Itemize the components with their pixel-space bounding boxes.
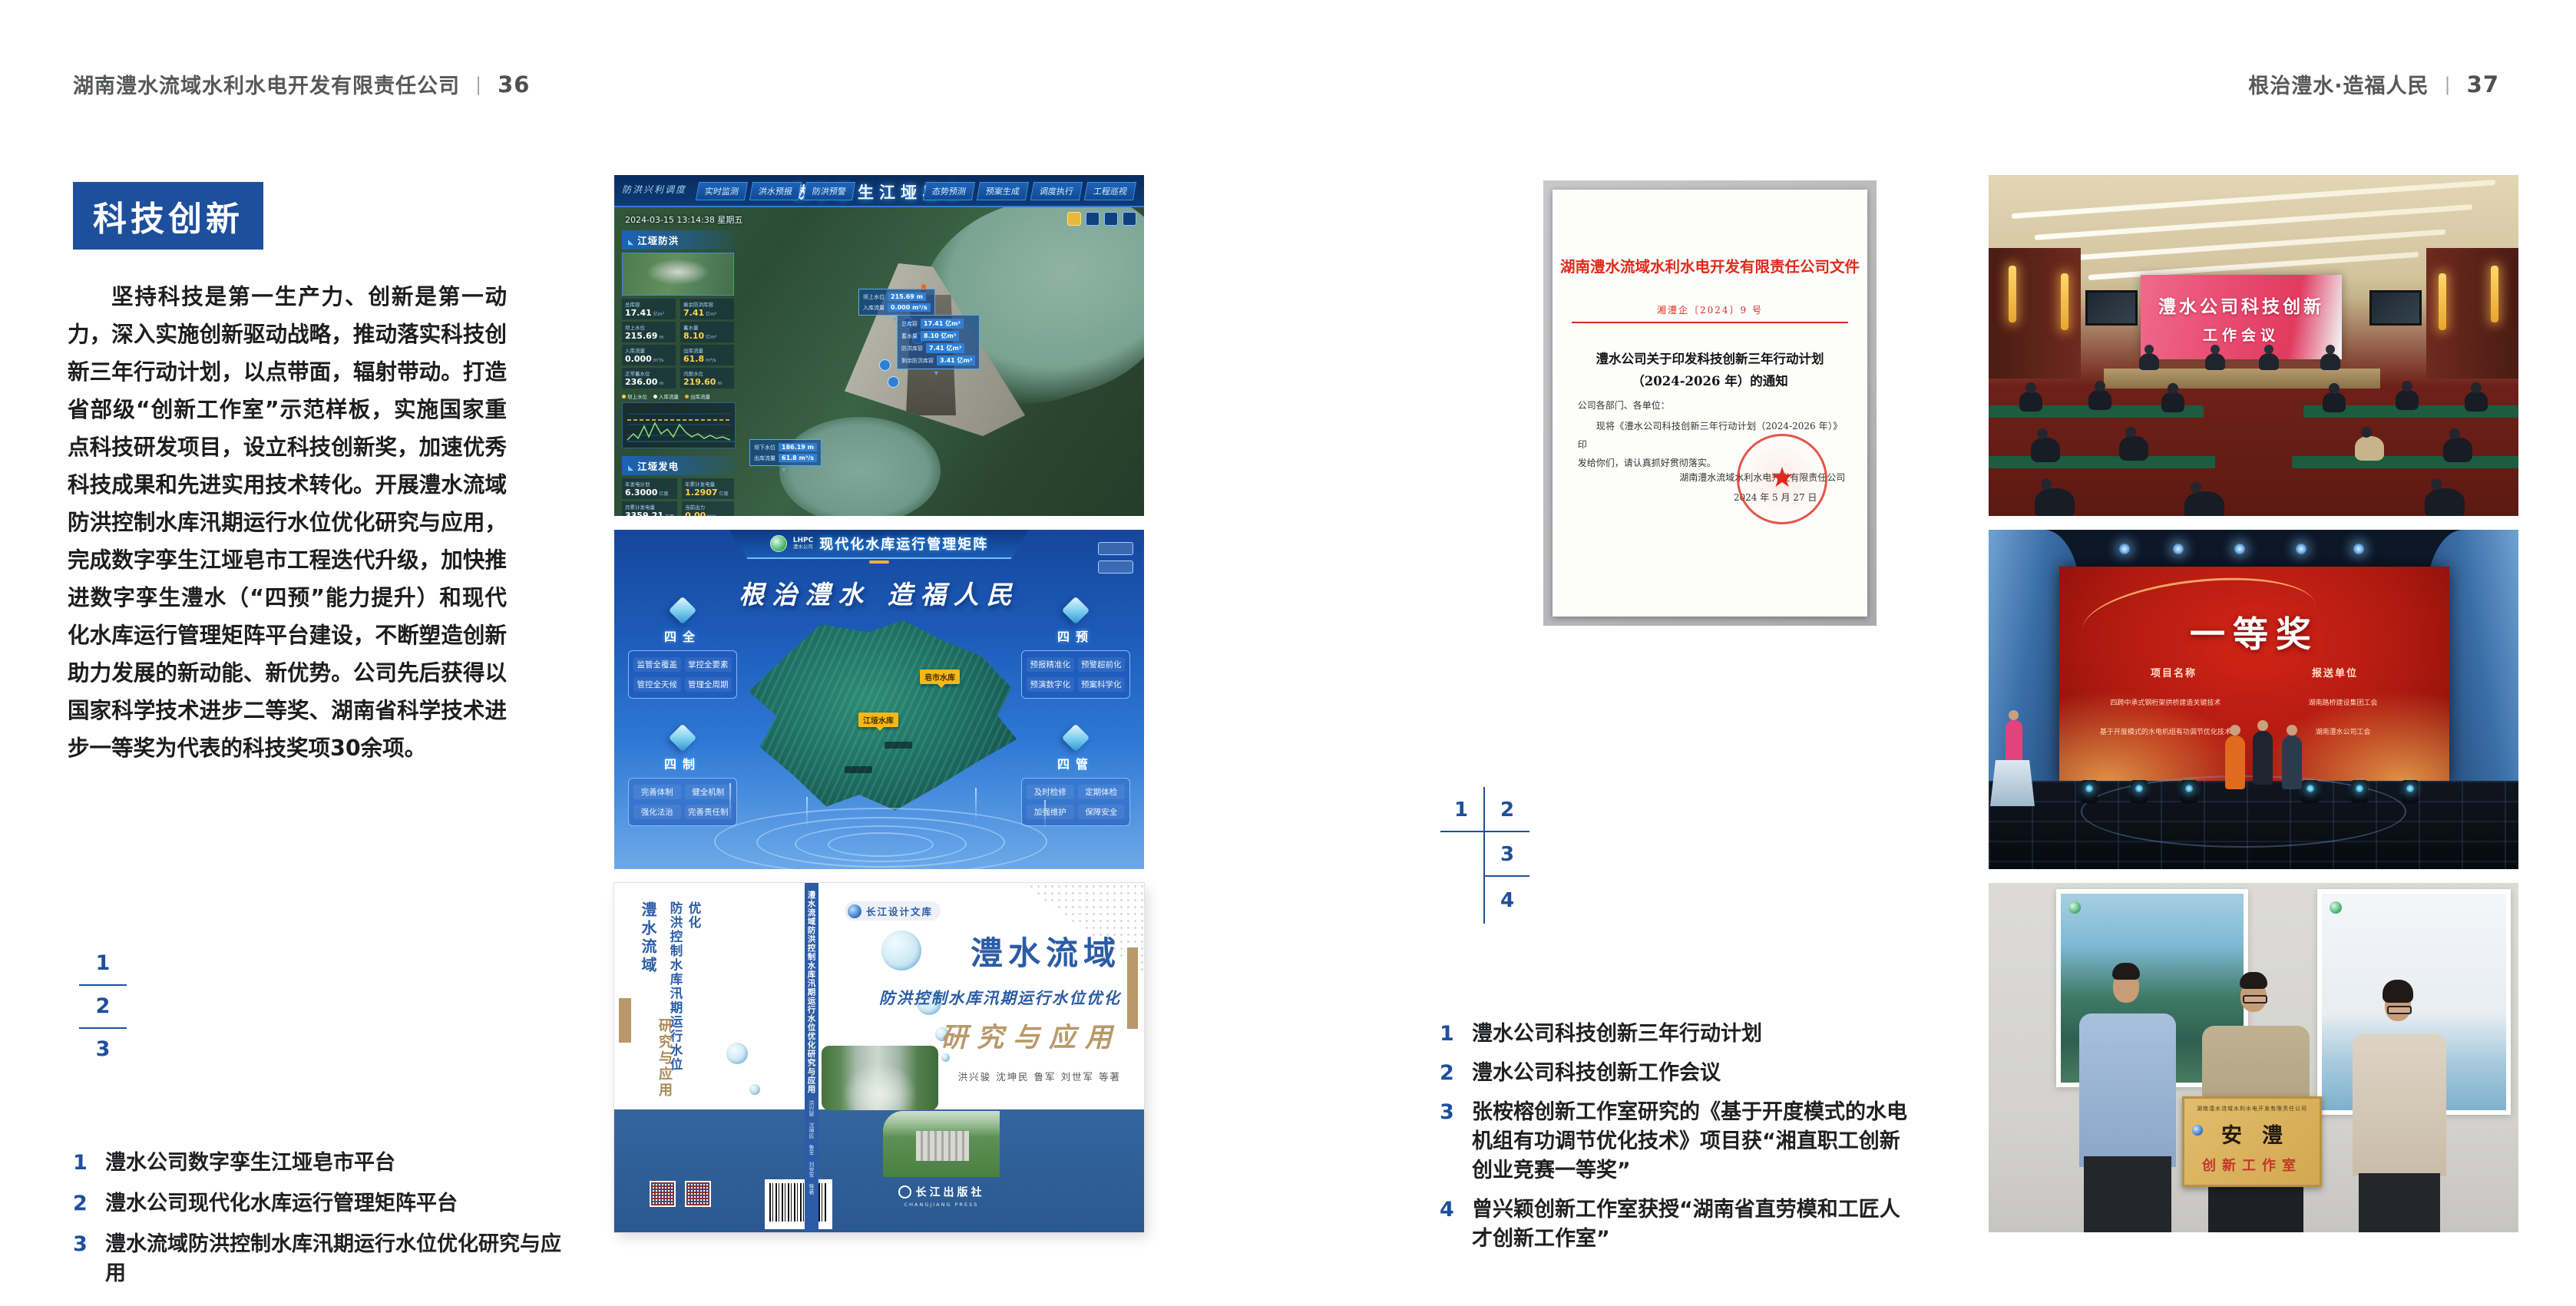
figure-digital-twin-dashboard: 防洪兴利调度 数字孪生江垭皂市 实时监测 洪水预报 防洪预警 态势预测 预案生成… (614, 175, 1144, 516)
header-divider: | (2445, 74, 2452, 95)
publisher-logo (898, 1185, 911, 1199)
dashboard-tabs-right: 态势预测 预案生成 调度执行 工程巡视 (924, 182, 1135, 200)
index-divider-line (79, 1027, 127, 1029)
stage-light-fixture (2402, 780, 2419, 803)
changjiang-design-logo (848, 904, 861, 918)
qr-code (685, 1181, 711, 1207)
power-panel-title: 江垭发电 (622, 456, 734, 475)
figure-index-left: 1 2 3 (79, 952, 127, 1061)
tab-dispatch-execution[interactable]: 调度执行 (1030, 182, 1083, 200)
qr-code (650, 1181, 676, 1207)
figure-management-matrix: LHPC 澧水公司 现代化水库运行管理矩阵 根治澧水 造福人民 皂市水库 江垭水… (614, 530, 1144, 869)
caption-text: 澧水公司现代化水库运行管理矩阵平台 (105, 1189, 458, 1218)
attendee (2323, 392, 2346, 412)
rostrum-person (2320, 353, 2340, 370)
monitor-icon (669, 597, 697, 625)
tab-flood-forecast[interactable]: 洪水预报 (749, 182, 802, 200)
locate-icon[interactable] (1104, 212, 1118, 226)
map-pin-jiangya[interactable]: 江垭水库 (858, 713, 898, 727)
caption-row: 3 张桉榕创新工作室研究的《基于开度模式的水电机组有功调节优化技术》项目获“湘直… (1440, 1098, 1931, 1185)
page-number-right: 37 (2467, 71, 2499, 98)
page-number-left: 36 (498, 71, 530, 98)
fullscreen-button[interactable] (1098, 542, 1133, 555)
stage-light-fixture (2181, 780, 2197, 803)
water-bubble (726, 1043, 748, 1064)
wall-lamp (2439, 273, 2446, 330)
book-title-main: 澧水流域 (879, 927, 1121, 974)
glasses (2243, 995, 2267, 1003)
document-salutation: 公司各部门、各单位： (1578, 398, 1670, 412)
dashboard-timestamp: 2024-03-15 13:14:38 星期五 (625, 213, 742, 226)
series-badge: 长江设计文库 (845, 901, 941, 921)
light-pillar (729, 783, 731, 820)
index-vertical-line (1483, 787, 1485, 924)
woman-beige-top (2353, 1033, 2446, 1176)
caption-row: 2 澧水公司科技创新工作会议 (1440, 1059, 1931, 1088)
plaque-logo (2192, 1125, 2203, 1136)
quadrant-sizhi: 四制 完善体制 健全机制 强化法治 完善责任制 (628, 728, 737, 826)
attendee (2184, 491, 2224, 516)
awardee-orange (2225, 736, 2245, 789)
award-row: 四跨中承式钢桁架拱桥建造关键技术湖南路桥建设集团工会 (2090, 697, 2419, 707)
caption-row: 3 澧水流域防洪控制水库汛期运行水位优化研究与应用 (73, 1230, 564, 1288)
header-divider: | (475, 74, 482, 95)
attendee (2396, 390, 2419, 410)
caption-text: 澧水流域防洪控制水库汛期运行水位优化研究与应用 (105, 1230, 564, 1288)
stat-cell: 当前出力0.00MW (682, 501, 734, 516)
figure-index-number: 2 (79, 995, 127, 1018)
light-pillar (975, 788, 977, 823)
tab-project-inspection[interactable]: 工程巡视 (1084, 182, 1136, 200)
man-blue-shirt-trousers (2084, 1156, 2171, 1232)
caption-number: 4 (1440, 1195, 1472, 1225)
matrix-title: 现代化水库运行管理矩阵 (819, 534, 988, 554)
caption-text: 曾兴颖创新工作室获授“湖南省直劳模和工匠人才创新工作室” (1472, 1195, 1917, 1254)
flood-control-panel: 江垭防洪 总库容17.41亿m³ 剩余防洪库容7.41亿m³ 坝上水位215.6… (622, 230, 734, 516)
header-accent (869, 560, 889, 564)
green-dam-photo (883, 1111, 1000, 1177)
photo-first-prize-stage: 一等奖 项目名称报送单位 四跨中承式钢桁架拱桥建造关键技术湖南路桥建设集团工会 … (1989, 530, 2518, 869)
poster-lhpc-logo (2068, 901, 2081, 914)
dam-thumbnail-photo (622, 253, 734, 296)
award-column-headers: 项目名称报送单位 (2059, 665, 2449, 679)
institution-icon (669, 724, 697, 752)
forecast-icon (1062, 597, 1090, 625)
caption-number: 1 (1440, 1020, 1472, 1049)
seal-star-icon: ★ (1770, 462, 1794, 494)
hair (2383, 980, 2413, 1003)
ceiling-spotlight (2353, 544, 2364, 554)
tab-flood-warning[interactable]: 防洪预警 (803, 182, 855, 200)
official-seal: ★ (1737, 434, 1827, 524)
figure-index-number: 1 (79, 952, 127, 975)
document-title: 澧水公司关于印发科技创新三年行动计划 （2024-2026 年）的通知 (1553, 348, 1867, 392)
tan-accent-block (619, 998, 631, 1043)
rostrum-person (2259, 353, 2279, 370)
left-running-head: 湖南澧水流域水利水电开发有限责任公司 | 36 (73, 69, 530, 99)
quadrant-siyu: 四预 预报精准化 预警超前化 预演数字化 预案科学化 (1021, 600, 1130, 699)
canyon-dam-photo (822, 1046, 938, 1110)
wall-lamp (2061, 273, 2068, 330)
layers-icon[interactable] (1086, 212, 1100, 226)
rostrum-person (2139, 353, 2159, 370)
brochure-spread: 湖南澧水流域水利水电开发有限责任公司 | 36 根治澧水·造福人民 | 37 科… (0, 0, 2576, 1306)
ceiling-spotlight (2234, 544, 2245, 554)
stat-cell: 入库流量0.000m³/s (622, 345, 676, 365)
tab-realtime-monitoring[interactable]: 实时监测 (696, 182, 748, 200)
right-running-head: 根治澧水·造福人民 | 37 (2248, 69, 2499, 99)
stat-cell: 月累计发电量3359.21万度 (622, 501, 677, 516)
section-title-badge: 科技创新 (73, 182, 263, 250)
attendee (2035, 488, 2075, 516)
photo-studio-plaque: 湖南澧水流域水利水电开发有限责任公司 安澧 创新工作室 (1989, 883, 2518, 1232)
book-spine: 澧水流域防洪控制水库汛期运行水位优化研究与应用 洪兴骏 沈坤民 鲁军 刘世军 等… (805, 883, 818, 1232)
stat-cell: 正常蓄水位236.00m (622, 368, 676, 388)
power-stats-grid: 年发电计划6.3000亿度 年累计发电量1.2907亿度 月累计发电量3359.… (622, 478, 734, 516)
figure-official-document: 湖南澧水流域水利水电开发有限责任公司文件 湘澧企〔2024〕9 号 澧水公司关于… (1543, 180, 1877, 626)
caption-row: 4 曾兴颖创新工作室获授“湖南省直劳模和工匠人才创新工作室” (1440, 1195, 1931, 1254)
back-cover-subtitle: 研究与应用 (654, 1018, 674, 1099)
caption-text: 澧水公司数字孪生江垭皂市平台 (105, 1149, 395, 1178)
document-red-rule (1572, 322, 1849, 323)
stage-light-fixture (2351, 780, 2368, 803)
studio-plaque: 湖南澧水流域水利水电开发有限责任公司 安澧 创新工作室 (2182, 1096, 2322, 1187)
quadrant-siguan: 四管 及时检修 定期体检 加强维护 保障安全 (1021, 728, 1130, 826)
quadrant-siquan: 四全 监管全覆盖 掌控全要素 管控全天候 管理全周期 (628, 600, 737, 699)
tailwater (779, 417, 941, 516)
attendee (2119, 436, 2148, 461)
left-captions: 1 澧水公司数字孪生江垭皂市平台 2 澧水公司现代化水库运行管理矩阵平台 3 澧… (73, 1149, 564, 1288)
book-title-sub: 防洪控制水库汛期运行水位优化 (879, 985, 1121, 1008)
menu-button[interactable] (1098, 560, 1133, 574)
lhpc-logo (770, 535, 787, 552)
map-station-label (845, 766, 872, 773)
stage-light-fixture (2081, 780, 2098, 803)
logo-text: LHPC 澧水公司 (793, 537, 813, 550)
plaque-subtitle: 创新工作室 (2184, 1155, 2320, 1175)
caption-text: 张桉榕创新工作室研究的《基于开度模式的水电机组有功调节优化技术》项目获“湘直职工… (1472, 1098, 1917, 1185)
tab-plan-generation[interactable]: 预案生成 (977, 182, 1029, 200)
caption-row: 1 澧水公司数字孪生江垭皂市平台 (73, 1149, 564, 1178)
stat-cell: 剩余防洪库容7.41亿m³ (680, 299, 734, 319)
figure-index-number: 3 (79, 1038, 127, 1061)
ceiling-spotlight (2296, 544, 2306, 554)
stat-cell: 总库容17.41亿m³ (622, 299, 676, 319)
stat-cell: 汛限水位219.60m (680, 368, 734, 388)
glasses (2387, 1006, 2412, 1014)
stage-light-fixture (2131, 780, 2148, 803)
ripple-ring (828, 832, 934, 857)
caption-number: 1 (73, 1149, 105, 1178)
caption-number: 2 (73, 1189, 105, 1218)
meeting-screen: 澧水公司科技创新 工作会议 (2141, 275, 2342, 359)
attendee (2031, 438, 2060, 462)
chart-legend: 坝上水位 入库流量 出库流量 (622, 392, 734, 400)
caption-number: 3 (1440, 1098, 1472, 1127)
caption-number: 3 (73, 1230, 105, 1259)
water-bubble (749, 1084, 760, 1095)
figure-book-cover: 澧水流域 防洪控制水库汛期运行水位优化 研究与应用 澧水流域防洪控制水库汛期运行… (614, 883, 1144, 1232)
capacity-callout: 总库容17.41 亿m³ 蓄水量8.10 亿m³ 防洪库容7.41 亿m³ 剩余… (897, 315, 980, 369)
meeting-screen-subtitle: 工作会议 (2141, 324, 2342, 345)
matrix-header-bar: LHPC 澧水公司 现代化水库运行管理矩阵 (729, 530, 1029, 559)
index-horizontal-line (1483, 875, 1529, 877)
attendee (2425, 488, 2465, 516)
publisher-mark: 长江出版社 CHANGJIANG PRESS (883, 1184, 1000, 1208)
user-icon[interactable] (1067, 212, 1081, 226)
host-podium (1990, 760, 2035, 806)
man-blue-shirt (2079, 1013, 2176, 1167)
settings-icon[interactable] (1123, 212, 1136, 226)
attendee (2088, 390, 2111, 410)
dashboard-tabs-left: 实时监测 洪水预报 防洪预警 (697, 182, 854, 200)
dashboard-tool-icons (1067, 212, 1136, 226)
stat-cell: 年累计发电量1.2907亿度 (682, 478, 734, 499)
green-table-cloth (2292, 456, 2518, 468)
caption-text: 澧水公司科技创新三年行动计划 (1472, 1020, 1917, 1049)
caption-number: 2 (1440, 1059, 1472, 1088)
gate-marker (888, 376, 899, 388)
poster-lhpc-logo (2330, 901, 2342, 914)
presenter-suit (2253, 731, 2273, 785)
gate-marker (879, 359, 891, 371)
right-captions: 1 澧水公司科技创新三年行动计划 2 澧水公司科技创新工作会议 3 张桉榕创新工… (1440, 1020, 1931, 1254)
index-horizontal-line (1440, 831, 1529, 832)
stage-light-fixture (2302, 780, 2319, 803)
caption-row: 2 澧水公司现代化水库运行管理矩阵平台 (73, 1189, 564, 1218)
award-title: 一等奖 (2059, 607, 2449, 657)
attendee (2019, 392, 2042, 412)
front-cover: 长江设计文库 澧水流域 防洪控制水库汛期运行水位优化 研究与应用 洪兴骏 沈坤民… (818, 883, 1144, 1232)
hair (2112, 963, 2140, 980)
attendee (2443, 438, 2472, 462)
attendee (2161, 392, 2184, 412)
meeting-screen-title: 澧水公司科技创新 (2141, 292, 2342, 318)
body-paragraph: 坚持科技是第一生产力、创新是第一动力，深入实施创新驱动战略，推动落实科技创新三年… (68, 278, 507, 767)
map-station-label (885, 742, 912, 749)
stat-cell: 年发电计划6.3000亿度 (622, 478, 677, 499)
downstream-callout: 坝下水位186.19 m 出库流量61.8 m³/s (749, 439, 822, 466)
upstream-callout: 坝上水位215.69 m 入库流量0.000 m³/s (858, 289, 935, 316)
ceiling-spotlight (2173, 544, 2184, 554)
flood-panel-title: 江垭防洪 (622, 230, 734, 250)
hair (2240, 972, 2267, 989)
stat-cell: 出库流量61.8m³/s (680, 345, 734, 365)
maintenance-icon (1062, 724, 1090, 752)
attendee (2355, 436, 2384, 461)
company-name: 湖南澧水流域水利水电开发有限责任公司 (73, 69, 460, 99)
ceiling-spotlight (2119, 544, 2130, 554)
tab-situation-forecast[interactable]: 态势预测 (923, 182, 975, 200)
water-level-chart (622, 402, 736, 448)
document-number: 湘澧企〔2024〕9 号 (1553, 303, 1867, 316)
document-red-header: 湖南澧水流域水利水电开发有限责任公司文件 (1553, 254, 1867, 276)
tan-edge-bar (1127, 947, 1138, 1029)
attendee (2465, 392, 2488, 412)
stat-cell: 蓄水量8.10亿m³ (680, 322, 734, 342)
stat-cell: 坝上水位215.69m (622, 322, 676, 342)
document-page: 湖南澧水流域水利水电开发有限责任公司文件 湘澧企〔2024〕9 号 澧水公司关于… (1553, 190, 1867, 617)
caption-text: 澧水公司科技创新工作会议 (1472, 1059, 1917, 1088)
light-pillar (806, 797, 808, 828)
caption-row: 1 澧水公司科技创新三年行动计划 (1440, 1020, 1931, 1049)
rostrum-person (2205, 353, 2225, 370)
wall-tv (2085, 290, 2138, 326)
wall-lamp (2009, 266, 2016, 322)
wall-lamp (2491, 266, 2498, 322)
dam-face (916, 1131, 970, 1162)
woman-trousers (2359, 1173, 2440, 1232)
flood-stats-grid: 总库容17.41亿m³ 剩余防洪库容7.41亿m³ 坝上水位215.69m 蓄水… (622, 299, 734, 388)
map-pin-zaoshi[interactable]: 皂市水库 (920, 670, 960, 684)
plaque-company-line: 湖南澧水流域水利水电开发有限责任公司 (2184, 1105, 2320, 1113)
wall-tv (2369, 290, 2422, 326)
green-table-cloth (1989, 456, 2215, 468)
index-divider-line (79, 984, 127, 986)
light-pillar (1044, 800, 1046, 829)
slogan: 根治澧水·造福人民 (2248, 69, 2429, 99)
photo-innovation-meeting: 澧水公司科技创新 工作会议 (1989, 175, 2518, 516)
awardee-blue (2282, 736, 2302, 789)
plaque-name: 安澧 (2184, 1119, 2320, 1149)
